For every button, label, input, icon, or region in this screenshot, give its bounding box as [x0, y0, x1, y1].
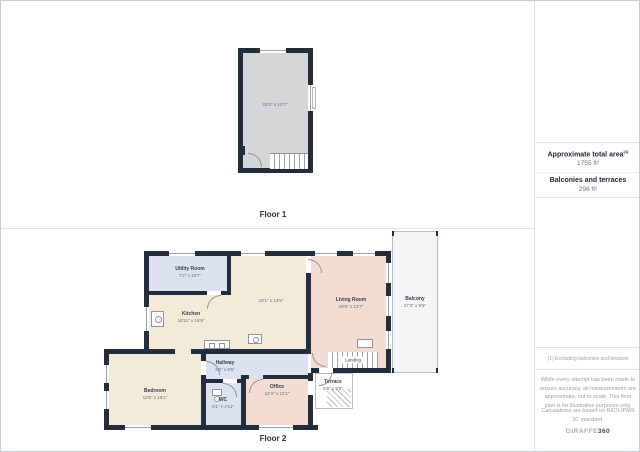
floor1-room — [243, 53, 308, 168]
balcony-tick — [436, 231, 438, 236]
window — [144, 307, 149, 331]
utility-room-label: Utility Room 7'2" x 15'7" — [175, 266, 204, 278]
room-name: Bedroom — [143, 388, 168, 395]
window — [104, 365, 109, 383]
total-area-footnote-marker: (1) — [623, 149, 628, 154]
wall-segment — [241, 379, 246, 425]
window-sill — [312, 87, 316, 109]
stove-fixture — [248, 334, 262, 344]
room-name: Balcony — [404, 296, 426, 303]
hallway-label: Hallway 3'2" x 8'5" — [215, 360, 235, 372]
room-dims: 19'8" x 13'7" — [336, 303, 366, 309]
wall-segment — [241, 375, 249, 379]
total-area-heading: Approximate total area(1) — [535, 149, 640, 158]
room-dims: 12'4" x 12'1" — [265, 390, 290, 396]
landing-label: Landing — [342, 357, 364, 364]
exterior-steps — [327, 389, 351, 407]
staircase — [270, 153, 308, 169]
window — [169, 251, 195, 256]
wall-segment — [308, 373, 313, 381]
cabinet-fixture — [357, 339, 373, 348]
wall-segment — [238, 146, 245, 155]
sidebar-divider — [535, 172, 640, 173]
area-summary-box: Approximate total area(1) 1755 ft² Balco… — [535, 142, 640, 198]
window — [125, 425, 151, 430]
living-room-label: Living Room 19'8" x 13'7" — [336, 297, 366, 309]
window — [241, 251, 265, 256]
balconies-value: 296 ft² — [535, 186, 640, 193]
giraffe360-logo: GIRAFFE360 — [535, 428, 640, 435]
wall-segment — [263, 375, 311, 379]
floorplan-canvas: 23'0" x 12'7" Floor 1 — [0, 0, 640, 452]
wall-segment — [306, 273, 311, 353]
standard-text: Calculations are based on RICS IPMS 3C s… — [540, 407, 636, 424]
office-label: Office 12'4" x 12'1" — [265, 384, 290, 396]
wall-segment — [206, 379, 223, 383]
room-dims: 23'0" x 12'7" — [263, 102, 288, 108]
logo-prefix: GIRAFFE — [566, 428, 598, 435]
window — [386, 296, 391, 316]
floor1-label: Floor 1 — [223, 210, 323, 219]
disclaimer-text: While every attempt has been made to ens… — [540, 376, 636, 410]
floor1-room-label: 23'0" x 12'7" — [263, 102, 288, 108]
wall-segment — [144, 349, 311, 354]
balcony-tick — [392, 231, 394, 236]
room-dims: 8'1" x 4'11" — [212, 403, 234, 409]
logo-suffix: 360 — [598, 428, 610, 435]
balcony-label: Balcony 27'3" x 9'5" — [404, 296, 426, 308]
wall-segment — [104, 349, 109, 430]
footnote: (1) Excluding balconies and terraces — [535, 347, 640, 370]
window — [259, 425, 293, 430]
total-area-value: 1755 ft² — [535, 160, 640, 167]
room-dims: 18'11" x 16'9" — [178, 317, 205, 323]
balconies-label: Balconies and terraces — [535, 177, 640, 184]
sink-fixture — [204, 340, 230, 349]
wc-label: WC 8'1" x 4'11" — [212, 397, 234, 409]
room-dims: 12'6" x 18'1" — [143, 394, 168, 400]
balcony-tick — [436, 368, 438, 373]
room-name: Hallway — [215, 360, 235, 367]
room-name: Terrace — [323, 379, 343, 386]
floor2-label: Floor 2 — [223, 434, 323, 443]
room-dims: 27'3" x 9'5" — [404, 302, 426, 308]
wall-segment — [149, 291, 207, 295]
floor-section-divider — [1, 228, 535, 229]
wall-segment — [227, 256, 231, 295]
terrace-label: Terrace 6'8" x 5'6" — [323, 379, 343, 391]
wall-segment — [144, 251, 149, 354]
bedroom-label: Bedroom 12'6" x 18'1" — [143, 388, 168, 400]
window — [386, 263, 391, 283]
total-area-label: Approximate total area — [548, 151, 624, 158]
window — [260, 48, 286, 53]
room-dims: 7'2" x 15'7" — [175, 272, 204, 278]
room-name: Utility Room — [175, 266, 204, 273]
balcony-tick — [392, 368, 394, 373]
info-sidebar: Approximate total area(1) 1755 ft² Balco… — [534, 1, 640, 451]
kitchen-label: Kitchen 18'11" x 16'9" — [178, 311, 205, 323]
dining-area-label: 18'1" x 13'5" — [259, 298, 284, 304]
oven-fixture — [151, 311, 164, 327]
window — [104, 391, 109, 409]
room-name: Living Room — [336, 297, 366, 304]
toilet-fixture — [212, 389, 222, 396]
room-dims: 18'1" x 13'5" — [259, 298, 284, 304]
door-opening — [175, 349, 191, 354]
room-dims: 3'2" x 8'5" — [215, 366, 235, 372]
room-dims: 6'8" x 5'6" — [323, 385, 343, 391]
wall-segment — [104, 349, 149, 354]
wall-segment — [308, 395, 313, 425]
wall-segment — [221, 291, 231, 295]
window — [353, 251, 375, 256]
window — [315, 251, 337, 256]
window — [386, 331, 391, 349]
wall-segment — [201, 354, 206, 361]
